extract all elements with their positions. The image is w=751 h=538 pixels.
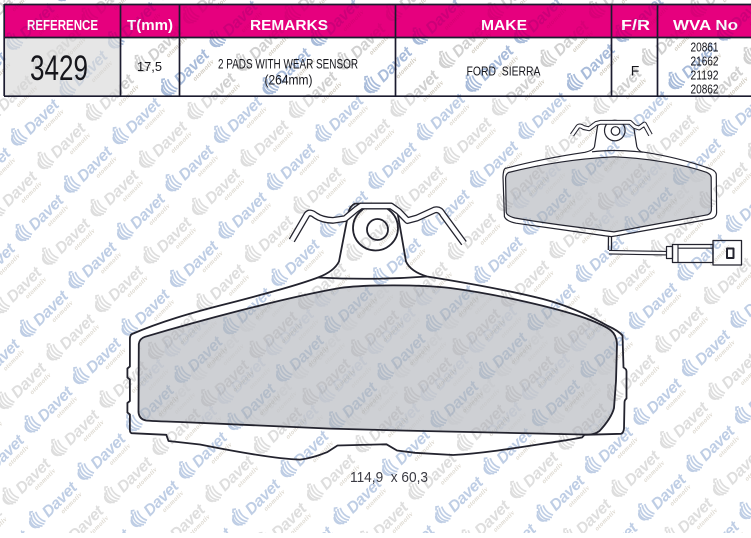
svg-text:114,9 x 60,3: 114,9 x 60,3 — [350, 469, 428, 486]
